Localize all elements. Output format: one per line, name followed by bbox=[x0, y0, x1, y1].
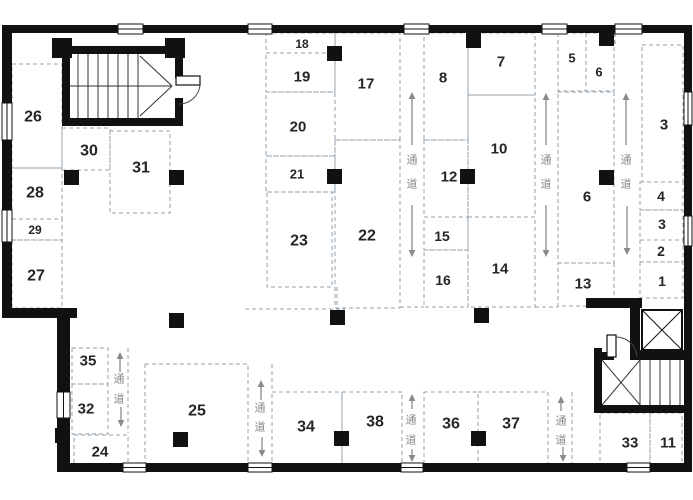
room-4-label: 4 bbox=[657, 188, 665, 204]
room-2-label: 2 bbox=[657, 243, 665, 259]
room-18-label: 18 bbox=[295, 37, 309, 51]
column-0 bbox=[327, 46, 342, 61]
floor-plan-canvas: 通道通道通道通道通道通道通道26303128292718192021231722… bbox=[0, 0, 693, 500]
room-28-label: 28 bbox=[26, 185, 44, 202]
room-22-label: 22 bbox=[358, 228, 376, 245]
room-22-box bbox=[335, 140, 400, 308]
wall-stair-br-bottom bbox=[594, 405, 690, 413]
corridor-upper-1-arrow-down-head bbox=[409, 250, 416, 257]
room-19-label: 19 bbox=[294, 69, 311, 86]
stair-tl-post-right bbox=[165, 38, 185, 58]
corridor-lower-4-label-char-1: 道 bbox=[556, 433, 567, 447]
wall-under-elevator bbox=[630, 350, 690, 360]
door-stair-bottom-right-leaf bbox=[607, 335, 616, 357]
room-29-label: 29 bbox=[28, 223, 42, 237]
corridor-upper-3-label-char-1: 道 bbox=[621, 177, 632, 191]
room-12-label: 12 bbox=[441, 169, 458, 186]
corridor-lower-3-arrow-down-head bbox=[409, 455, 416, 462]
wall-step bbox=[2, 308, 77, 318]
column-6 bbox=[460, 169, 475, 184]
room-21-label: 21 bbox=[290, 167, 304, 182]
room-8-label: 8 bbox=[439, 70, 447, 87]
room-27-label: 27 bbox=[27, 268, 45, 285]
room-30-label: 30 bbox=[80, 143, 98, 160]
corridor-lower-1-label-char-1: 道 bbox=[114, 392, 125, 406]
corridor-lower-1-arrow-up-head bbox=[117, 352, 124, 359]
column-14 bbox=[471, 431, 486, 446]
corridor-lower-1-label-char-0: 通 bbox=[114, 373, 125, 386]
column-10 bbox=[474, 308, 489, 323]
corridor-lower-2-label-char-1: 道 bbox=[255, 420, 266, 434]
room-3-box bbox=[642, 45, 683, 182]
stair-tl-diagonal-0 bbox=[140, 56, 172, 86]
room-10-label: 10 bbox=[491, 141, 508, 158]
stair-tl-wall-right-lower bbox=[175, 98, 183, 126]
corridor-lower-4-label-char-0: 通 bbox=[556, 415, 567, 428]
column-3 bbox=[64, 170, 79, 185]
wall-bottom bbox=[57, 463, 690, 472]
room-5-label: 5 bbox=[568, 51, 575, 66]
corridor-upper-2-arrow-up-head bbox=[543, 93, 550, 100]
floor-plan: 通道通道通道通道通道通道通道26303128292718192021231722… bbox=[0, 0, 693, 500]
room-23-label: 23 bbox=[290, 233, 308, 250]
room-36-label: 36 bbox=[442, 416, 460, 433]
room-15-label: 15 bbox=[434, 228, 450, 244]
stair-tl-post-left bbox=[52, 38, 72, 58]
room-8-box bbox=[424, 33, 468, 140]
column-4 bbox=[169, 170, 184, 185]
column-13 bbox=[334, 431, 349, 446]
room-35-label: 35 bbox=[80, 353, 97, 370]
corridor-upper-1-label-char-1: 道 bbox=[407, 177, 418, 191]
corridor-lower-2-arrow-down-head bbox=[259, 450, 266, 457]
corridor-upper-3-arrow-up-head bbox=[623, 93, 630, 100]
column-11 bbox=[55, 428, 70, 443]
corridor-lower-3-arrow-up-head bbox=[409, 394, 416, 401]
corridor-lower-3-label-char-0: 通 bbox=[406, 414, 417, 427]
corridor-upper-2-label-char-1: 道 bbox=[541, 177, 552, 191]
corridor-upper-3-arrow-down-head bbox=[624, 248, 631, 255]
column-12 bbox=[173, 432, 188, 447]
room-3-small-label: 3 bbox=[658, 216, 666, 232]
corridor-lower-4-arrow-up-head bbox=[558, 396, 565, 403]
stair-tl-wall-top bbox=[62, 46, 183, 54]
corridor-upper-2-label-char-0: 通 bbox=[541, 154, 552, 167]
room-33-label: 33 bbox=[622, 435, 639, 452]
room-20-label: 20 bbox=[290, 119, 307, 136]
corridor-lower-2-arrow-up-head bbox=[258, 380, 265, 387]
corridor-lower-3-label-char-1: 道 bbox=[406, 433, 417, 447]
room-7-label: 7 bbox=[497, 54, 505, 71]
room-34-label: 34 bbox=[297, 419, 315, 436]
wall-left bbox=[2, 25, 12, 316]
room-14-label: 14 bbox=[492, 261, 509, 278]
room-26-label: 26 bbox=[24, 109, 42, 126]
room-32-label: 32 bbox=[78, 401, 95, 418]
column-5 bbox=[327, 169, 342, 184]
corridor-upper-1-arrow-up-head bbox=[409, 92, 416, 99]
room-25-label: 25 bbox=[188, 403, 206, 420]
room-13-label: 13 bbox=[575, 276, 592, 293]
column-2 bbox=[599, 31, 614, 46]
room-3-label: 3 bbox=[660, 117, 668, 134]
wall-stair-br-left bbox=[594, 348, 602, 413]
room-17-label: 17 bbox=[358, 76, 375, 93]
corridor-upper-1-label-char-0: 通 bbox=[407, 154, 418, 167]
column-7 bbox=[599, 170, 614, 185]
room-16-label: 16 bbox=[435, 272, 451, 288]
corridor-lower-2-label-char-0: 通 bbox=[255, 402, 266, 415]
column-8 bbox=[169, 313, 184, 328]
room-24-label: 24 bbox=[92, 444, 109, 461]
room-6-small-label: 6 bbox=[595, 65, 602, 80]
room-37-label: 37 bbox=[502, 416, 520, 433]
corridor-upper-3-label-char-0: 通 bbox=[621, 154, 632, 167]
column-1 bbox=[466, 33, 481, 48]
corridor-lower-1-arrow-down-head bbox=[118, 420, 125, 427]
stair-tl-wall-bottom bbox=[62, 118, 183, 126]
room-11-label: 11 bbox=[660, 435, 676, 452]
room-38-label: 38 bbox=[366, 414, 384, 431]
column-9 bbox=[330, 310, 345, 325]
stair-tl-diagonal-1 bbox=[140, 86, 172, 116]
room-31-label: 31 bbox=[132, 160, 150, 177]
room-6-label: 6 bbox=[583, 189, 591, 206]
door-stair-top-left-leaf bbox=[176, 76, 200, 85]
corridor-lower-4-arrow-down-head bbox=[560, 455, 567, 462]
wall-top bbox=[2, 25, 690, 33]
corridor-upper-2-arrow-down-head bbox=[543, 250, 550, 257]
room-1-label: 1 bbox=[658, 273, 666, 289]
